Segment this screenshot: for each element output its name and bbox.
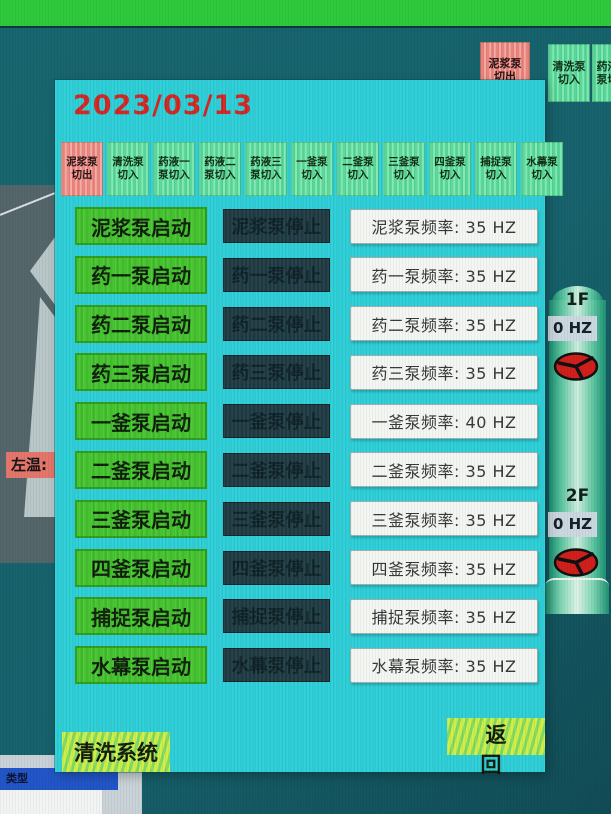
pump-row: 二釜泵启动二釜泵停止二釜泵频率: 35 HZ <box>55 450 545 490</box>
pump-stop-button[interactable]: 药三泵停止 <box>223 355 330 389</box>
pump-frequency-display: 药二泵频率: 35 HZ <box>350 306 538 341</box>
pump-row: 泥浆泵启动泥浆泵停止泥浆泵频率: 35 HZ <box>55 206 545 246</box>
pump-row: 药三泵启动药三泵停止药三泵频率: 35 HZ <box>55 352 545 392</box>
left-temperature-label: 左温: <box>6 452 60 478</box>
pump-start-button[interactable]: 四釜泵启动 <box>75 549 207 587</box>
pipe-flange <box>545 578 609 614</box>
tab-pump-switch-in-5[interactable]: 一釜泵 切入 <box>291 142 333 196</box>
pump-row: 三釜泵启动三釜泵停止三釜泵频率: 35 HZ <box>55 499 545 539</box>
system-title-label: 清洗系统 <box>62 732 170 772</box>
pump-stop-button[interactable]: 二釜泵停止 <box>223 453 330 487</box>
pump-stop-button[interactable]: 泥浆泵停止 <box>223 209 330 243</box>
tab-pump-switch-in-1[interactable]: 清洗泵 切入 <box>107 142 149 196</box>
pump-stop-button[interactable]: 药一泵停止 <box>223 258 330 292</box>
pump-frequency-display: 一釜泵频率: 40 HZ <box>350 404 538 439</box>
tab-pump-switch-in-4[interactable]: 药液三 泵切入 <box>245 142 287 196</box>
tank-graphic <box>0 185 55 563</box>
date-display: 2023/03/13 <box>73 90 253 121</box>
pump-row: 水幕泵启动水幕泵停止水幕泵频率: 35 HZ <box>55 645 545 685</box>
pump-frequency-display: 药一泵频率: 35 HZ <box>350 257 538 292</box>
pump-frequency-display: 三釜泵频率: 35 HZ <box>350 501 538 536</box>
pump-start-button[interactable]: 三釜泵启动 <box>75 500 207 538</box>
pump-start-button[interactable]: 药一泵启动 <box>75 256 207 294</box>
pump-frequency-display: 二釜泵频率: 35 HZ <box>350 452 538 487</box>
back-button[interactable]: 返 回 <box>447 718 545 755</box>
top-green-strip <box>0 0 611 28</box>
fan-1f-icon <box>552 350 600 383</box>
tab-pump-switch-out-0[interactable]: 泥浆泵 切出 <box>61 142 103 196</box>
pump-stop-button[interactable]: 药二泵停止 <box>223 307 330 341</box>
pump-row: 捕捉泵启动捕捉泵停止捕捉泵频率: 35 HZ <box>55 596 545 636</box>
floor-2f-label: 2F <box>549 486 606 506</box>
pump-frequency-display: 药三泵频率: 35 HZ <box>350 355 538 390</box>
pump-frequency-display: 水幕泵频率: 35 HZ <box>350 648 538 683</box>
pump-start-button[interactable]: 一釜泵启动 <box>75 402 207 440</box>
pump-frequency-display: 泥浆泵频率: 35 HZ <box>350 209 538 244</box>
fan-2f-frequency-display: 0 HZ <box>548 512 597 537</box>
bg-wash-pump-switch-in-button[interactable]: 清洗泵 切入 <box>548 44 590 102</box>
pump-frequency-display: 捕捉泵频率: 35 HZ <box>350 599 538 634</box>
pump-stop-button[interactable]: 一釜泵停止 <box>223 404 330 438</box>
pump-stop-button[interactable]: 捕捉泵停止 <box>223 599 330 633</box>
pump-frequency-display: 四釜泵频率: 35 HZ <box>350 550 538 585</box>
pump-row: 四釜泵启动四釜泵停止四釜泵频率: 35 HZ <box>55 548 545 588</box>
pump-start-button[interactable]: 捕捉泵启动 <box>75 597 207 635</box>
tab-pump-switch-in-6[interactable]: 二釜泵 切入 <box>337 142 379 196</box>
pump-switch-tab-bar: 泥浆泵 切出清洗泵 切入药液一 泵切入药液二 泵切入药液三 泵切入一釜泵 切入二… <box>61 142 563 196</box>
tab-pump-switch-in-8[interactable]: 四釜泵 切入 <box>429 142 471 196</box>
equipment-graphic-left <box>0 185 55 563</box>
tab-pump-switch-in-10[interactable]: 水幕泵 切入 <box>521 142 563 196</box>
pump-start-button[interactable]: 药三泵启动 <box>75 353 207 391</box>
bg-chem1-pump-switch-in-button[interactable]: 药液一 泵切入 <box>592 44 611 102</box>
floor-1f-label: 1F <box>549 290 606 310</box>
pump-rows: 泥浆泵启动泥浆泵停止泥浆泵频率: 35 HZ药一泵启动药一泵停止药一泵频率: 3… <box>55 206 545 694</box>
pump-start-button[interactable]: 水幕泵启动 <box>75 646 207 684</box>
pump-start-button[interactable]: 泥浆泵启动 <box>75 207 207 245</box>
pump-stop-button[interactable]: 四釜泵停止 <box>223 551 330 585</box>
pump-start-button[interactable]: 药二泵启动 <box>75 305 207 343</box>
tab-pump-switch-in-2[interactable]: 药液一 泵切入 <box>153 142 195 196</box>
tab-pump-switch-in-7[interactable]: 三釜泵 切入 <box>383 142 425 196</box>
pump-row: 药一泵启动药一泵停止药一泵频率: 35 HZ <box>55 255 545 295</box>
fan-1f-frequency-display: 0 HZ <box>548 316 597 341</box>
pump-stop-button[interactable]: 三釜泵停止 <box>223 502 330 536</box>
tab-pump-switch-in-9[interactable]: 捕捉泵 切入 <box>475 142 517 196</box>
pump-stop-button[interactable]: 水幕泵停止 <box>223 648 330 682</box>
pump-control-panel: 2023/03/13 泥浆泵 切出清洗泵 切入药液一 泵切入药液二 泵切入药液三… <box>55 80 545 772</box>
mini-window-body <box>0 790 102 814</box>
hmi-screen: 左温: 泥浆泵 切出 清洗泵 切入 药液一 泵切入 1F 0 HZ 2F 0 H… <box>0 0 611 814</box>
pump-row: 一釜泵启动一釜泵停止一釜泵频率: 40 HZ <box>55 401 545 441</box>
tab-pump-switch-in-3[interactable]: 药液二 泵切入 <box>199 142 241 196</box>
pump-start-button[interactable]: 二釜泵启动 <box>75 451 207 489</box>
pump-row: 药二泵启动药二泵停止药二泵频率: 35 HZ <box>55 304 545 344</box>
fan-2f-icon <box>552 546 600 579</box>
